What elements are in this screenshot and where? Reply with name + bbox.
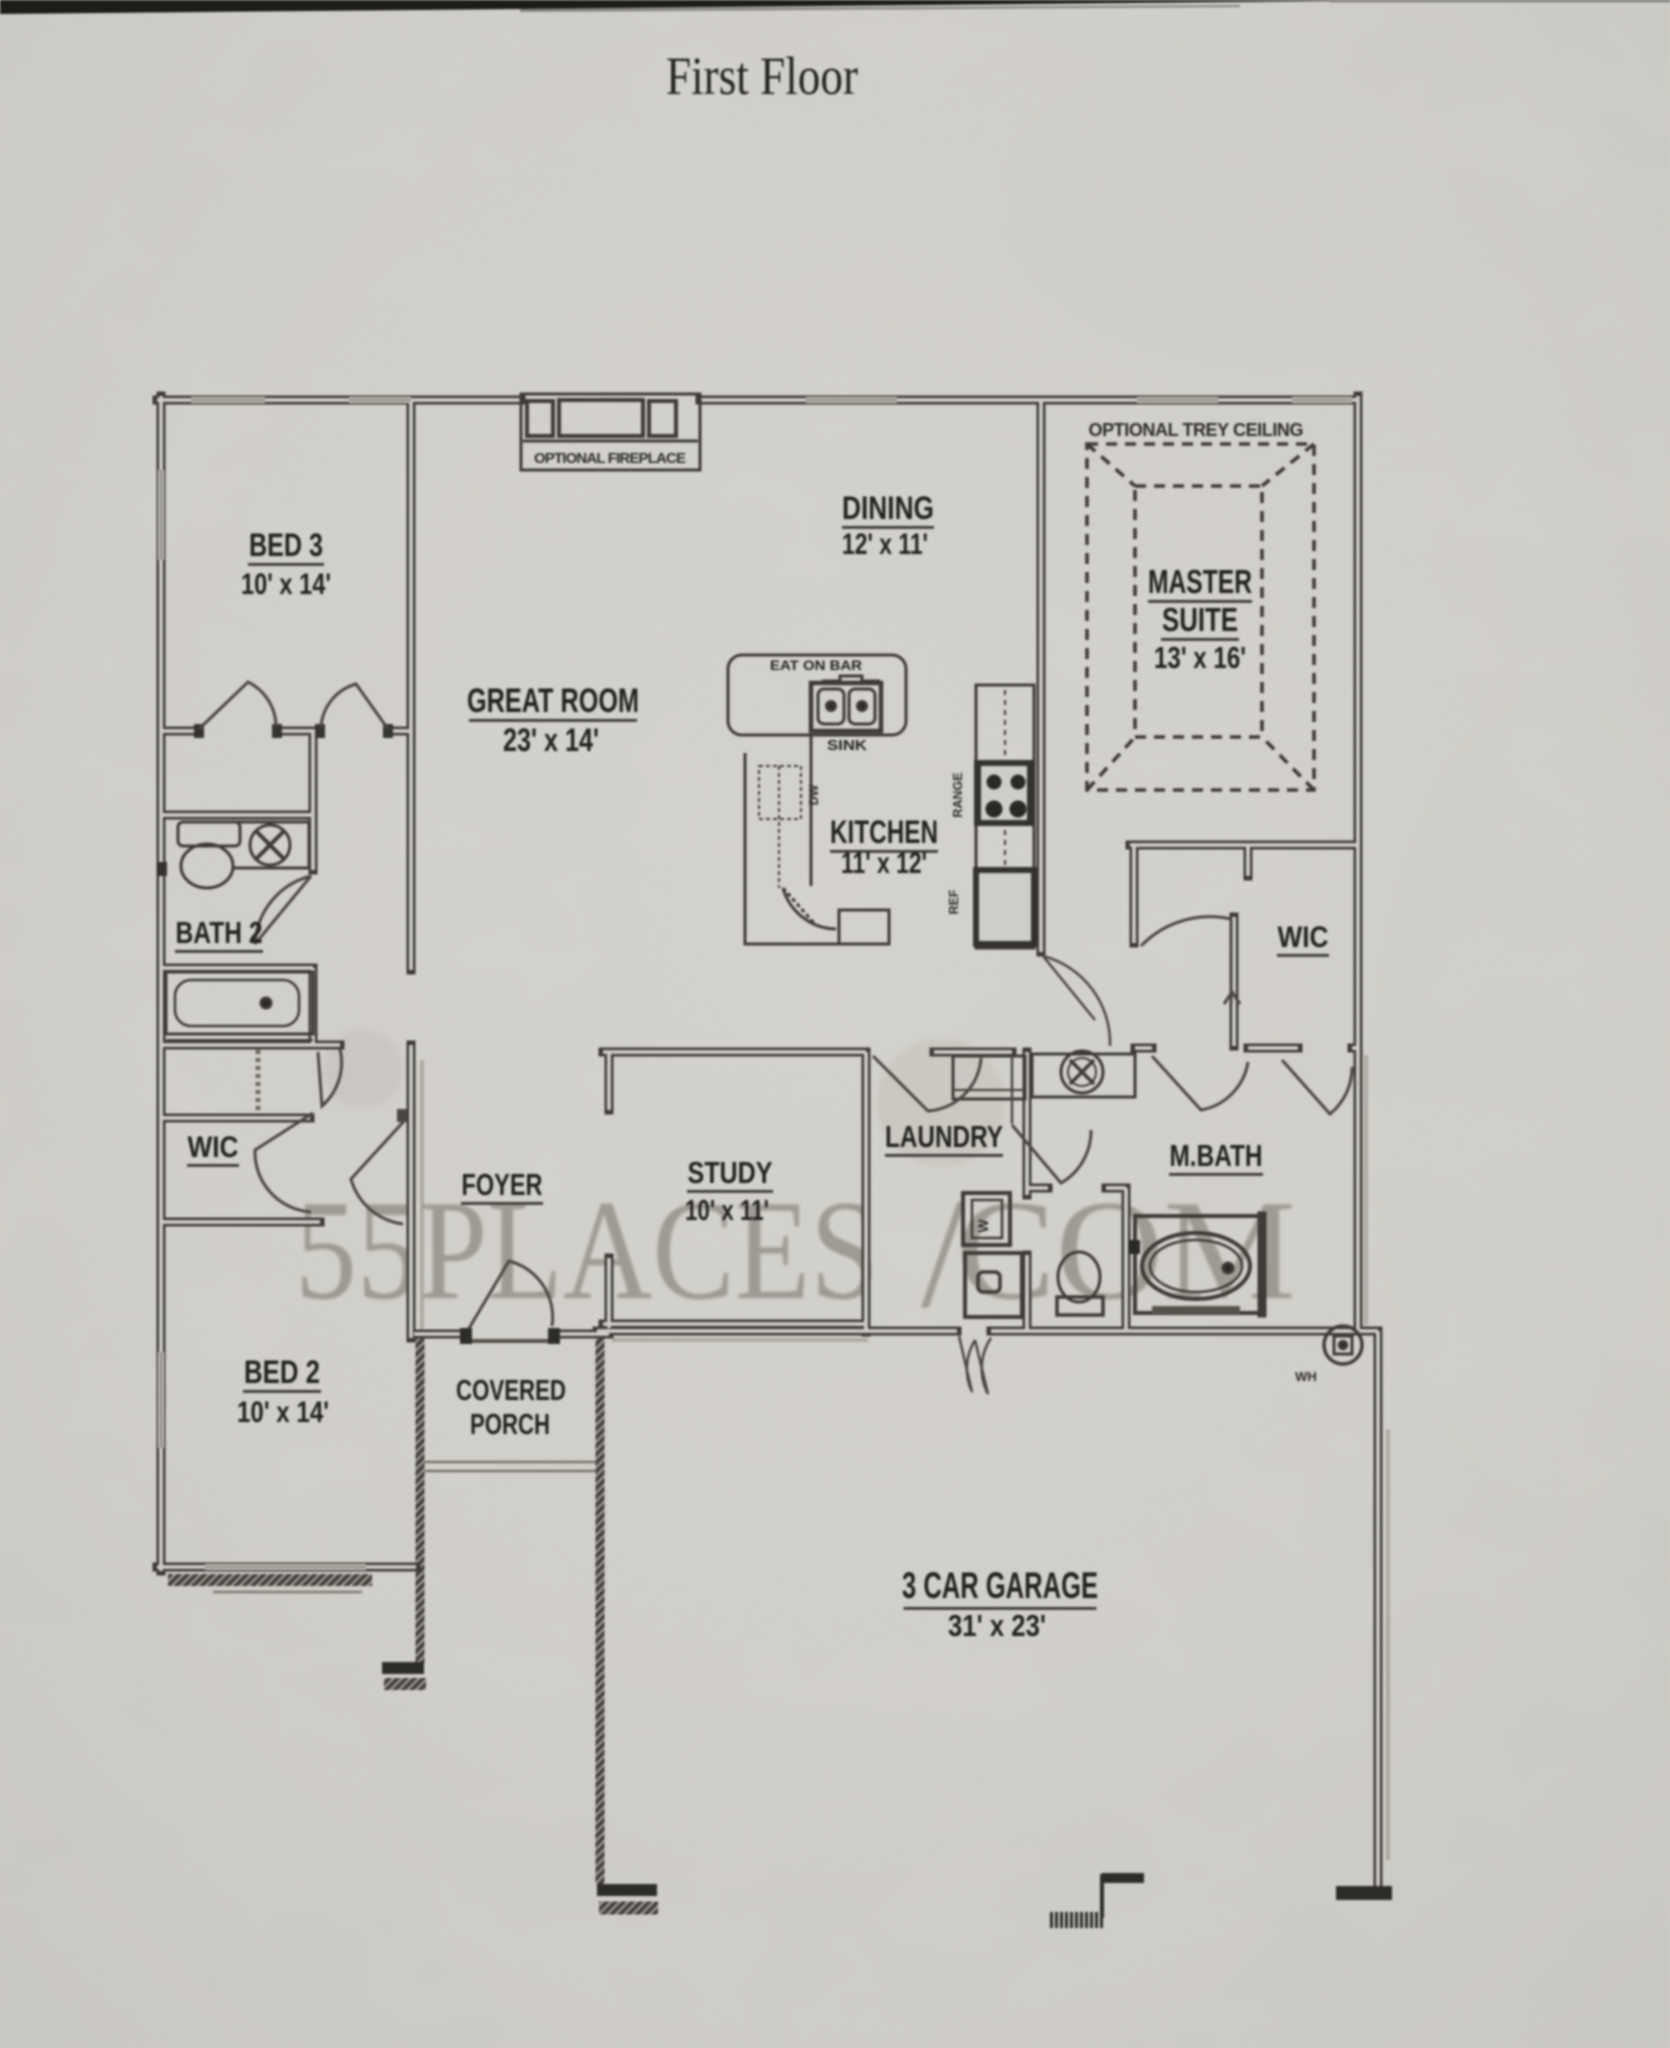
- svg-text:First Floor: First Floor: [666, 46, 858, 106]
- svg-text:DINING: DINING: [842, 490, 934, 526]
- svg-text:GREAT ROOM: GREAT ROOM: [467, 682, 639, 720]
- svg-text:BED 3: BED 3: [249, 527, 323, 563]
- svg-text:PORCH: PORCH: [470, 1409, 550, 1441]
- svg-text:55PLACES: 55PLACES: [295, 1171, 879, 1329]
- svg-text:OPTIONAL TREY CEILING: OPTIONAL TREY CEILING: [1089, 420, 1304, 440]
- svg-text:SINK: SINK: [827, 737, 867, 754]
- svg-text:KITCHEN: KITCHEN: [830, 814, 938, 850]
- svg-text:WIC: WIC: [188, 1131, 239, 1164]
- svg-text:BED 2: BED 2: [244, 1354, 320, 1390]
- svg-text:REF: REF: [947, 889, 961, 914]
- svg-text:MASTER: MASTER: [1148, 563, 1252, 600]
- svg-text:LAUNDRY: LAUNDRY: [885, 1119, 1003, 1154]
- svg-text:SUITE: SUITE: [1162, 601, 1238, 638]
- svg-text:10' x 11': 10' x 11': [685, 1195, 769, 1227]
- svg-text:23' x 14': 23' x 14': [503, 722, 599, 758]
- svg-text:OPTIONAL FIREPLACE: OPTIONAL FIREPLACE: [534, 450, 686, 467]
- svg-text:COVERED: COVERED: [456, 1375, 566, 1407]
- svg-text:DW: DW: [807, 784, 821, 805]
- svg-text:WIC: WIC: [1278, 921, 1329, 954]
- svg-text:STUDY: STUDY: [688, 1155, 773, 1190]
- svg-text:13' x 16': 13' x 16': [1154, 640, 1246, 675]
- svg-text:RANGE: RANGE: [951, 772, 965, 817]
- svg-text:10' x 14': 10' x 14': [241, 568, 331, 601]
- svg-text:BATH 2: BATH 2: [176, 915, 263, 950]
- svg-text:M.BATH: M.BATH: [1170, 1138, 1263, 1173]
- svg-text:WH: WH: [1295, 1369, 1317, 1384]
- svg-text:11' x 12': 11' x 12': [841, 847, 927, 880]
- svg-text:EAT ON BAR: EAT ON BAR: [770, 657, 862, 673]
- svg-text:31' x 23': 31' x 23': [948, 1608, 1046, 1643]
- svg-text:FOYER: FOYER: [462, 1167, 543, 1202]
- svg-text:12' x 11': 12' x 11': [842, 528, 928, 561]
- svg-text:W: W: [975, 1219, 991, 1233]
- svg-text:3 CAR GARAGE: 3 CAR GARAGE: [902, 1565, 1098, 1606]
- svg-text:10' x 14': 10' x 14': [237, 1396, 329, 1429]
